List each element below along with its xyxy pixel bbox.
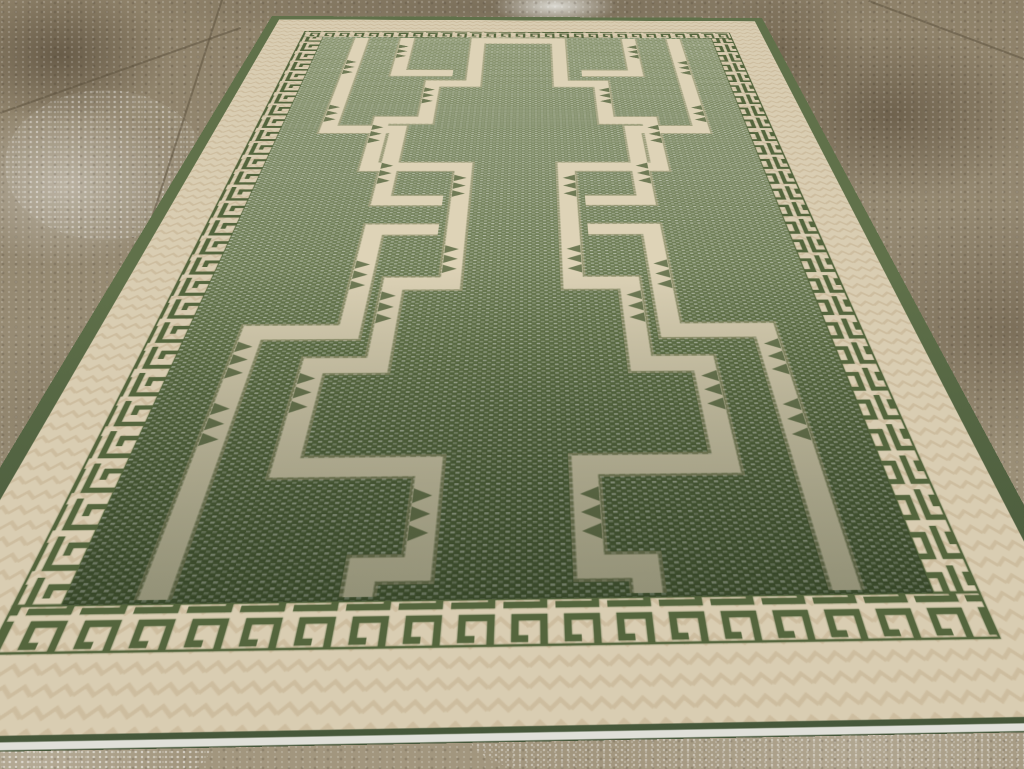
photo-scene xyxy=(0,0,1024,769)
